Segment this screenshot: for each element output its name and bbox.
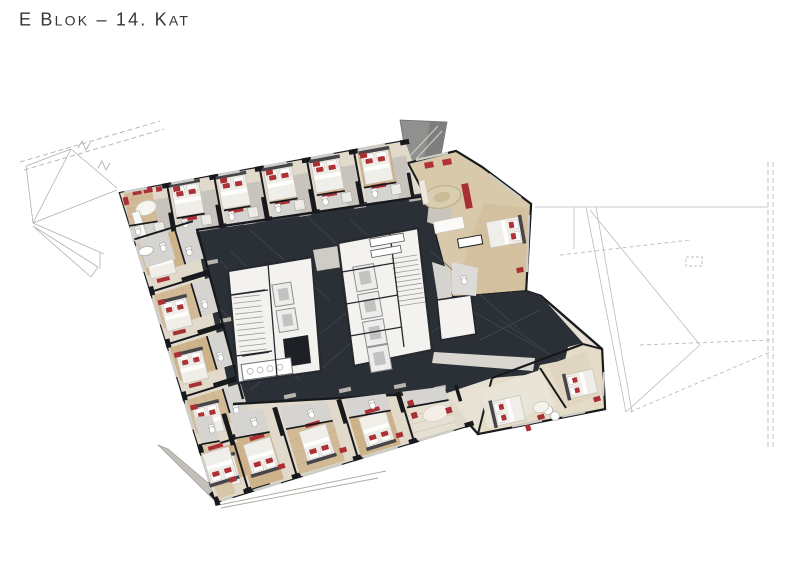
svg-text:E BLOK – 14. KAT: E BLOK – 14. KAT (19, 10, 190, 30)
